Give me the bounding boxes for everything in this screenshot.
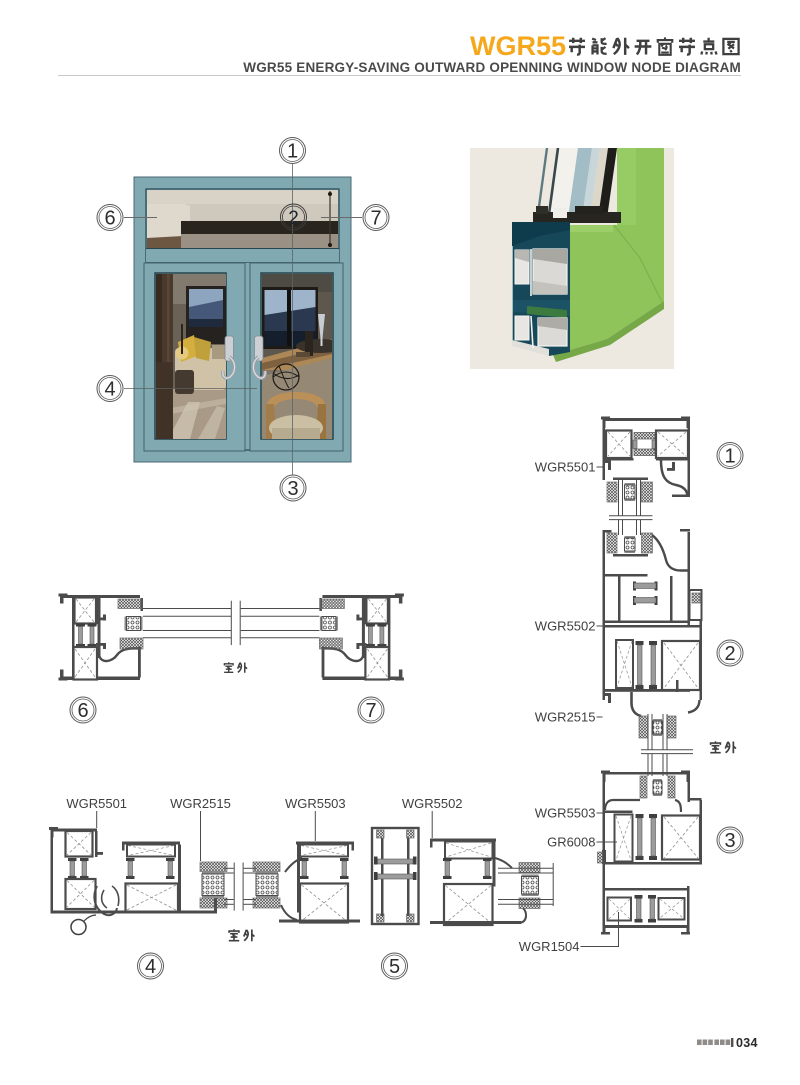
svg-text:4: 4 (145, 956, 156, 978)
svg-text:1: 1 (724, 446, 735, 468)
svg-text:WGR5502: WGR5502 (402, 796, 463, 811)
svg-text:1: 1 (287, 141, 298, 163)
svg-text:5: 5 (389, 956, 400, 978)
svg-text:WGR5502: WGR5502 (535, 619, 596, 634)
svg-text:WGR2515: WGR2515 (170, 796, 231, 811)
svg-text:4: 4 (104, 379, 115, 401)
svg-text:3: 3 (287, 478, 298, 500)
svg-text:WGR2515: WGR2515 (535, 710, 596, 725)
svg-text:7: 7 (370, 208, 381, 230)
svg-text:WGR5501: WGR5501 (66, 796, 127, 811)
svg-text:6: 6 (77, 700, 88, 722)
svg-text:WGR5503: WGR5503 (285, 796, 346, 811)
svg-text:WGR5503: WGR5503 (535, 806, 596, 821)
svg-text:2: 2 (288, 208, 299, 229)
svg-text:7: 7 (365, 700, 376, 722)
svg-text:2: 2 (724, 643, 735, 665)
svg-text:WGR1504: WGR1504 (519, 939, 580, 954)
svg-text:3: 3 (724, 830, 735, 852)
svg-text:WGR5501: WGR5501 (535, 460, 596, 475)
svg-text:GR6008: GR6008 (547, 835, 595, 850)
svg-text:6: 6 (104, 208, 115, 230)
svg-text:034: 034 (736, 1036, 758, 1050)
